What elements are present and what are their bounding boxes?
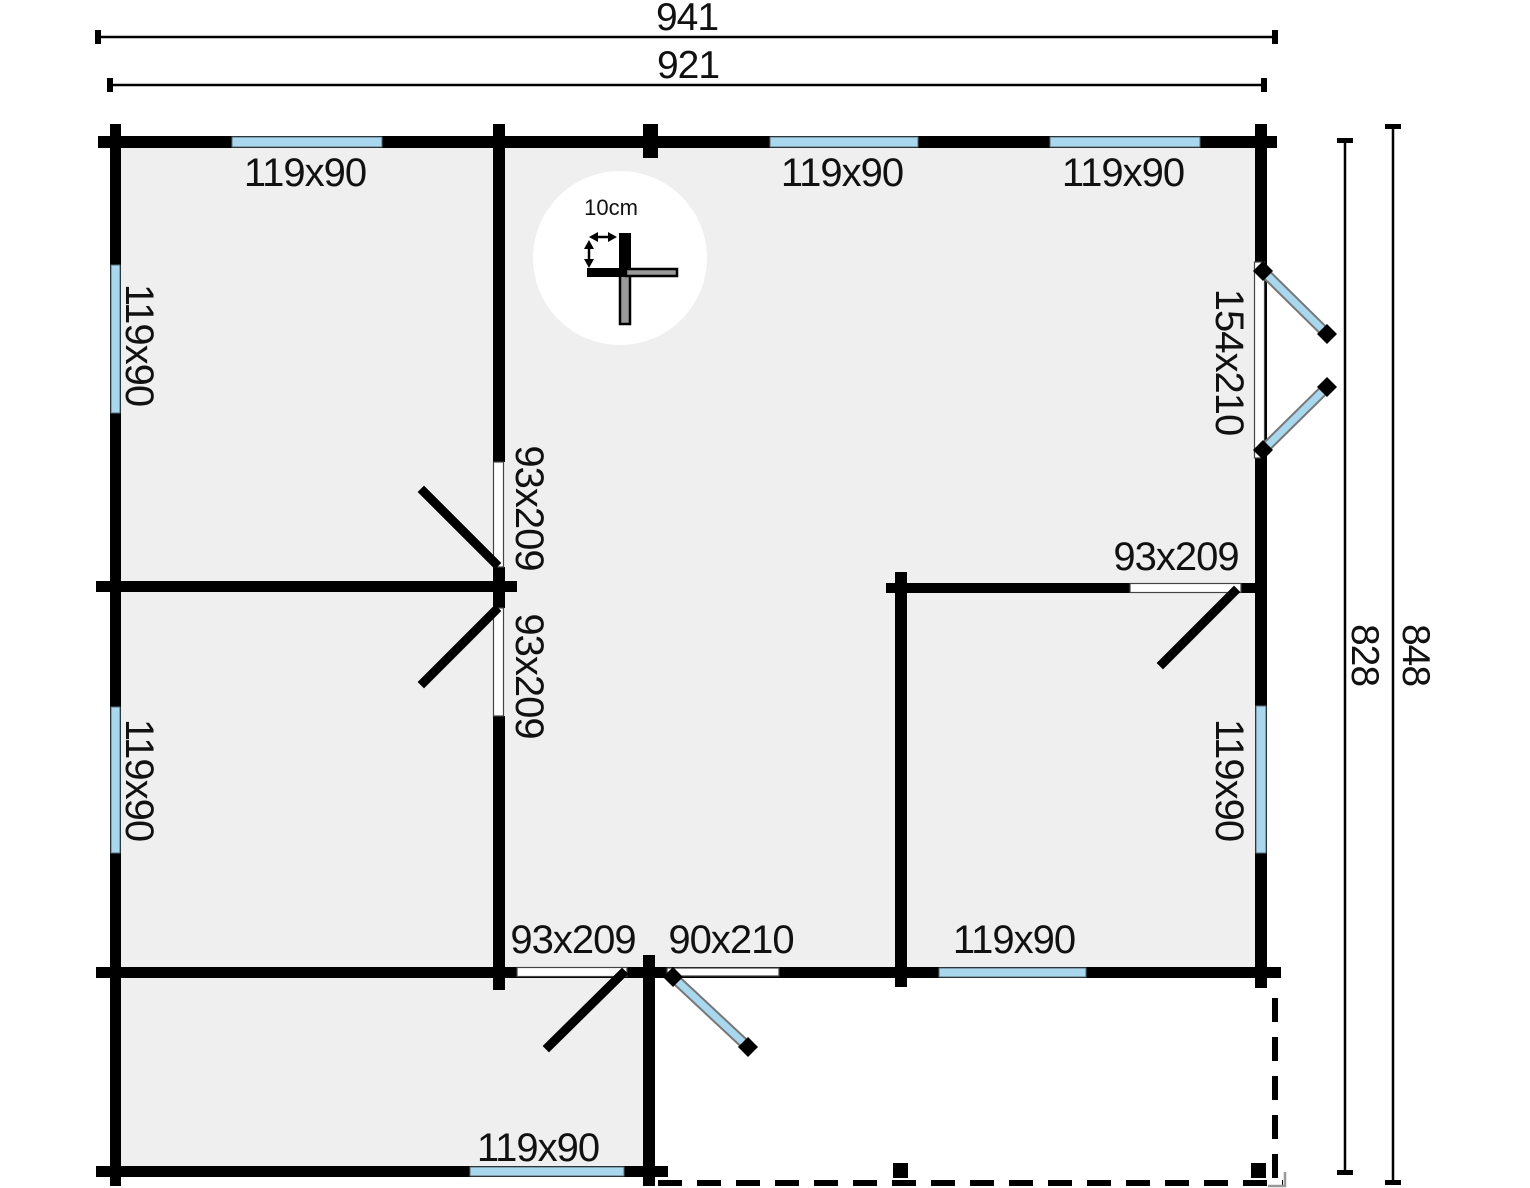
door-opening-right-double [1255,262,1265,458]
floor-plan-canvas: 10cm [0,0,1530,1188]
scale-cross-horizontal-solid [587,268,625,277]
label-window-top-left: 119x90 [244,151,366,195]
dim-label-width-inner: 921 [657,44,719,87]
door-leaf-entry [673,977,748,1047]
window-bottom-inner [939,968,1086,977]
door-leaf-double-upper [1263,271,1327,334]
wall-partition-right [895,572,907,987]
scale-cross-vertical-outline [620,274,630,324]
label-window-left-lower: 119x90 [117,719,161,841]
dim-tick-icon [1272,30,1278,44]
door-opening-entry [667,968,779,976]
wall-annex-right [643,955,655,1186]
window-right-lower [1256,706,1266,853]
dim-label-width-total: 941 [656,0,718,39]
label-window-top-right: 119x90 [1062,151,1184,195]
label-door-entry: 90x210 [668,918,793,962]
label-door-hall-lower: 93x209 [507,613,551,738]
door-opening-hall-upper [494,462,504,567]
dim-tick-icon [107,78,113,92]
wall-right [1255,124,1267,988]
terrace-post-left [893,1163,908,1178]
scale-cross-horizontal-outline [626,269,677,276]
scale-label: 10cm [584,195,638,220]
label-door-right-double: 154x210 [1207,289,1251,435]
label-window-annex-bottom: 119x90 [477,1126,599,1170]
wall-center-lower [493,716,505,990]
door-opening-room-right [1130,584,1241,593]
label-door-hall-upper: 93x209 [507,445,551,570]
terrace-post-right [1251,1163,1266,1178]
wall-center-upper [493,124,505,462]
wall-center-nub [493,567,505,608]
dim-label-height-total: 848 [1394,624,1437,686]
dim-tick-icon [1385,124,1401,129]
label-window-top-middle: 119x90 [781,151,903,195]
label-window-bottom-inner: 119x90 [953,918,1075,962]
wall-mid-left [96,581,517,592]
label-window-right-lower: 119x90 [1207,719,1251,841]
dim-tick-icon [1337,1170,1353,1175]
door-opening-annex [517,968,627,977]
window-top-left [232,137,382,147]
door-opening-hall-lower [494,608,504,716]
window-top-middle [770,137,918,147]
door-leaf-double-lower [1263,387,1327,450]
dim-label-height-inner: 828 [1343,624,1386,686]
wall-log-ear-top [643,124,658,158]
window-top-right [1050,137,1200,147]
dim-tick-icon [95,30,101,44]
dim-tick-icon [1261,78,1267,92]
dim-tick-icon [1385,1180,1401,1185]
dim-tick-icon [1337,138,1353,143]
label-window-left-upper: 119x90 [117,284,161,406]
label-door-annex: 93x209 [510,918,635,962]
label-door-room-right: 93x209 [1113,535,1238,579]
floor-plan: 10cm [0,0,1530,1188]
